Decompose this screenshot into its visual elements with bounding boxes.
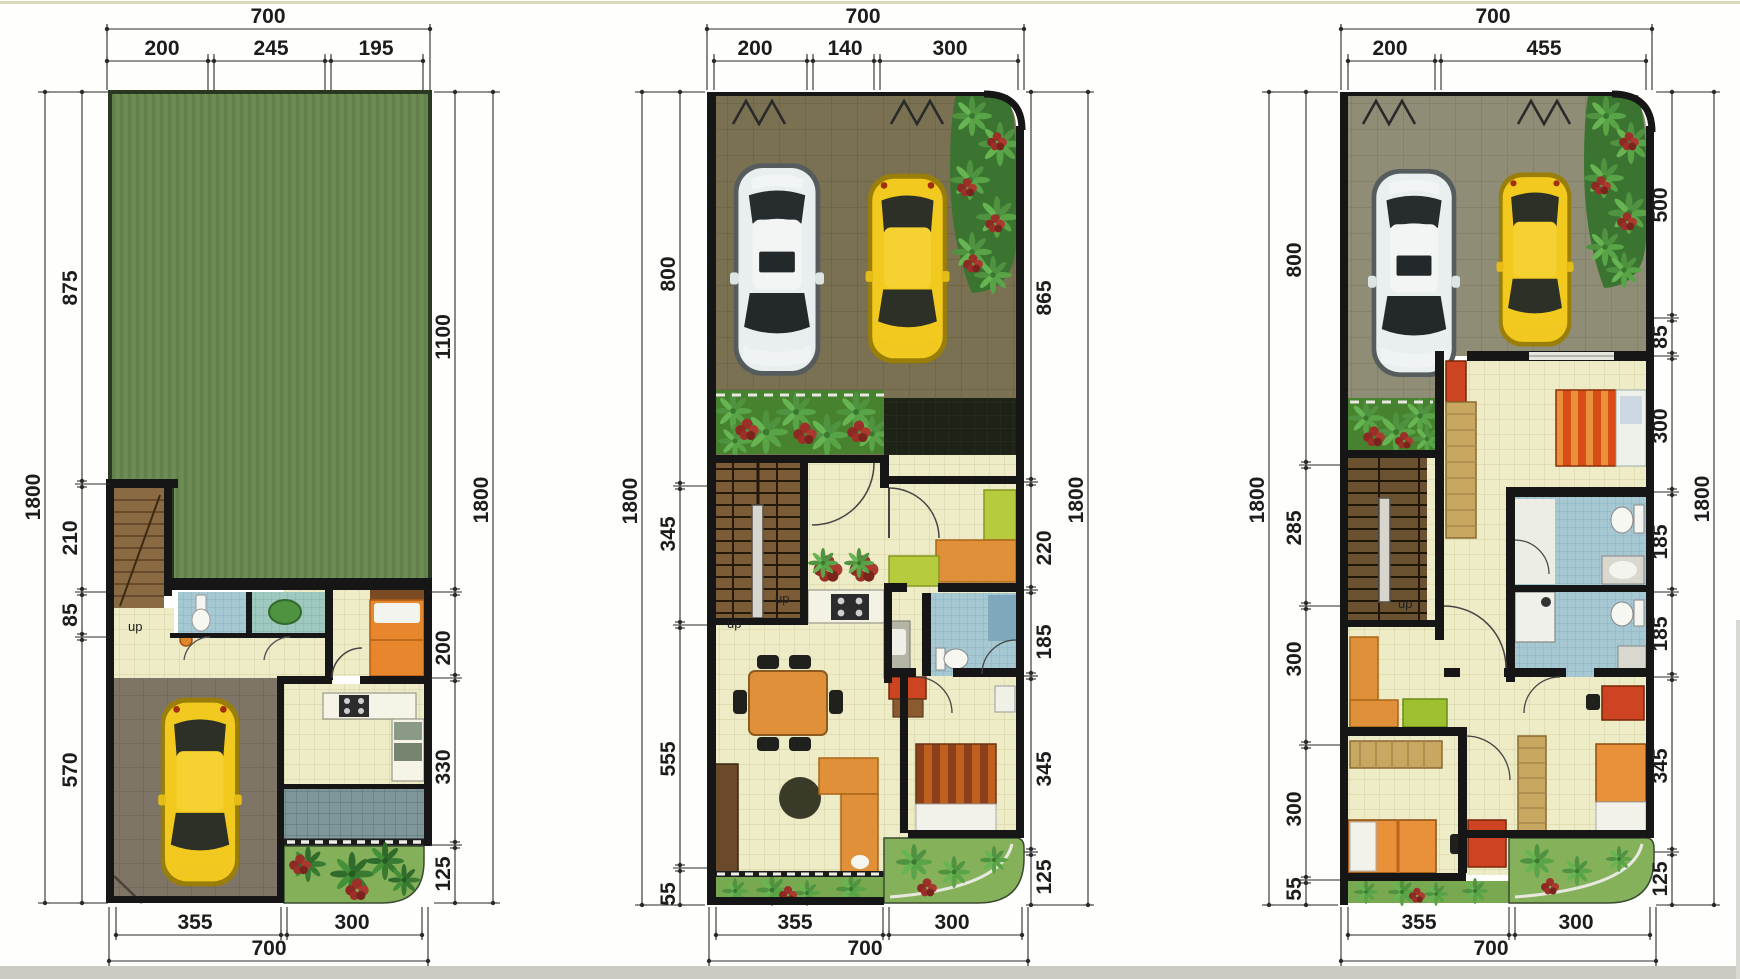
- svg-text:200: 200: [144, 37, 179, 60]
- svg-text:140: 140: [827, 37, 862, 60]
- svg-text:200: 200: [1372, 37, 1407, 60]
- svg-text:700: 700: [847, 937, 882, 960]
- svg-text:500: 500: [1649, 187, 1672, 222]
- svg-text:300: 300: [334, 911, 369, 934]
- svg-text:355: 355: [177, 911, 212, 934]
- svg-text:700: 700: [845, 5, 880, 28]
- svg-text:865: 865: [1033, 280, 1056, 315]
- svg-text:195: 195: [358, 37, 393, 60]
- svg-text:55: 55: [657, 882, 680, 906]
- svg-text:300: 300: [1558, 911, 1593, 934]
- svg-text:345: 345: [1649, 748, 1672, 783]
- svg-text:1800: 1800: [22, 474, 45, 521]
- svg-text:700: 700: [1475, 5, 1510, 28]
- svg-text:300: 300: [934, 911, 969, 934]
- svg-text:1800: 1800: [1246, 477, 1269, 524]
- svg-text:700: 700: [251, 937, 286, 960]
- svg-text:700: 700: [1473, 937, 1508, 960]
- svg-text:up: up: [775, 591, 789, 606]
- svg-text:up: up: [727, 616, 741, 631]
- svg-text:300: 300: [932, 37, 967, 60]
- svg-text:1800: 1800: [1065, 477, 1088, 524]
- svg-text:1800: 1800: [619, 478, 642, 525]
- svg-text:210: 210: [59, 520, 82, 555]
- svg-text:285: 285: [1283, 510, 1306, 545]
- svg-text:345: 345: [1033, 751, 1056, 786]
- svg-text:300: 300: [1283, 791, 1306, 826]
- svg-text:570: 570: [59, 752, 82, 787]
- svg-text:555: 555: [657, 741, 680, 776]
- svg-text:200: 200: [737, 37, 772, 60]
- svg-text:800: 800: [1283, 242, 1306, 277]
- svg-text:300: 300: [1283, 641, 1306, 676]
- svg-text:up: up: [128, 619, 142, 634]
- svg-text:300: 300: [1649, 408, 1672, 443]
- svg-text:355: 355: [777, 911, 812, 934]
- svg-text:185: 185: [1649, 616, 1672, 651]
- svg-text:1100: 1100: [432, 314, 455, 360]
- svg-text:125: 125: [1033, 859, 1056, 894]
- svg-text:1800: 1800: [470, 477, 493, 524]
- svg-text:125: 125: [432, 856, 455, 891]
- svg-text:up: up: [1398, 596, 1412, 611]
- svg-text:220: 220: [1033, 530, 1056, 565]
- svg-text:345: 345: [657, 516, 680, 551]
- svg-text:55: 55: [1283, 877, 1306, 901]
- svg-text:185: 185: [1033, 624, 1056, 659]
- svg-text:1800: 1800: [1691, 476, 1714, 523]
- svg-text:330: 330: [432, 749, 455, 784]
- svg-text:125: 125: [1649, 861, 1672, 896]
- svg-text:245: 245: [253, 37, 288, 60]
- svg-text:85: 85: [1649, 325, 1672, 349]
- svg-text:355: 355: [1401, 911, 1436, 934]
- svg-text:700: 700: [250, 5, 285, 28]
- svg-text:85: 85: [59, 603, 82, 627]
- svg-text:455: 455: [1526, 37, 1561, 60]
- svg-text:200: 200: [432, 630, 455, 665]
- svg-text:875: 875: [59, 270, 82, 305]
- svg-text:800: 800: [657, 256, 680, 291]
- svg-text:185: 185: [1649, 524, 1672, 559]
